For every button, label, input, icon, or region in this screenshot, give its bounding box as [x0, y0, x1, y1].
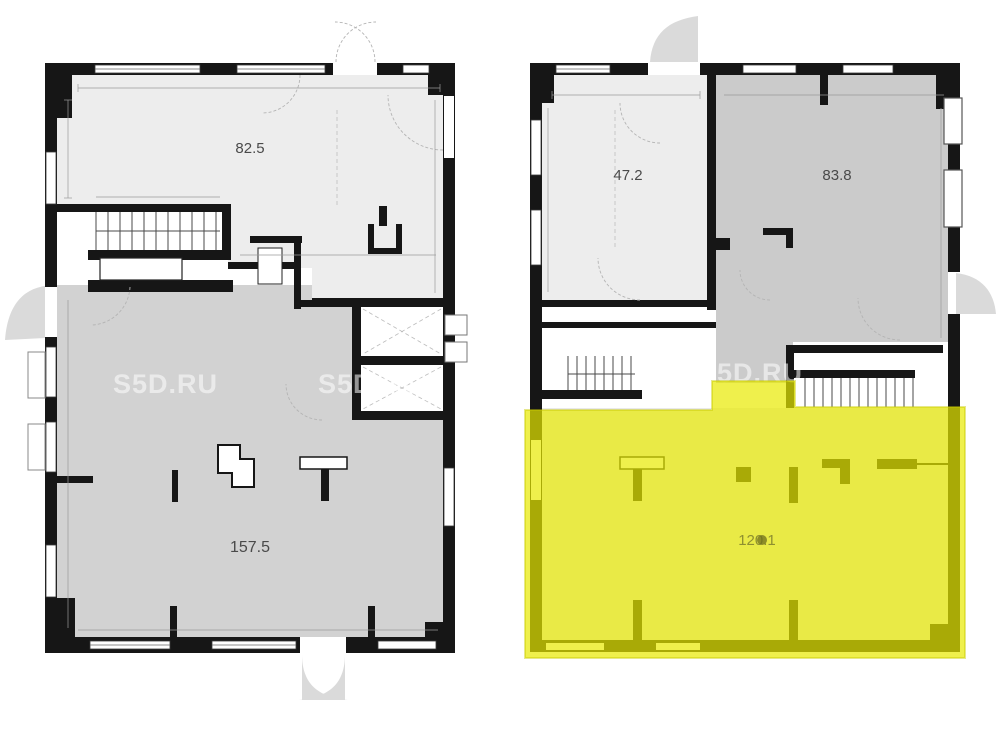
entrance-swing-left: [5, 286, 45, 340]
entrance-swing-top-right-plan: [650, 16, 698, 62]
room-157-5-label: 157.5: [230, 539, 270, 556]
room-47-2-label: 47.2: [613, 167, 642, 184]
room-82-5-label: 82.5: [235, 140, 264, 157]
door-gap-top-left-plan: [333, 63, 377, 75]
door-gap-bottom-left-plan: [300, 637, 346, 653]
room-47-2-floor: [542, 75, 707, 300]
staircase-right-plan-left: [530, 356, 642, 399]
room-83-8-label: 83.8: [822, 167, 851, 184]
watermark-logo-dot: [757, 535, 767, 545]
watermark-2: S5D.RU: [318, 369, 423, 399]
entrance-gap-left: [45, 287, 57, 337]
highlighted-unit-overlay[interactable]: [525, 381, 965, 658]
staircase-right-plan-right: [786, 345, 943, 408]
room-83-8-floor: [716, 75, 950, 383]
entrance-gap-top-right-plan: [648, 63, 700, 75]
floorplan-canvas: 82.5 157.5 47.2 83.8 S5D.RU S5D.RU S5D.R…: [0, 0, 1000, 750]
floorplan-drawing: 82.5 157.5 47.2 83.8 S5D.RU S5D.RU S5D.R…: [0, 0, 1000, 750]
staircase-left-plan: [57, 204, 233, 292]
room-120-1-label: 120.1: [738, 532, 776, 549]
watermark-1: S5D.RU: [113, 369, 218, 399]
left-floorplan: [5, 22, 467, 700]
door-swing-right-side: [956, 273, 996, 314]
